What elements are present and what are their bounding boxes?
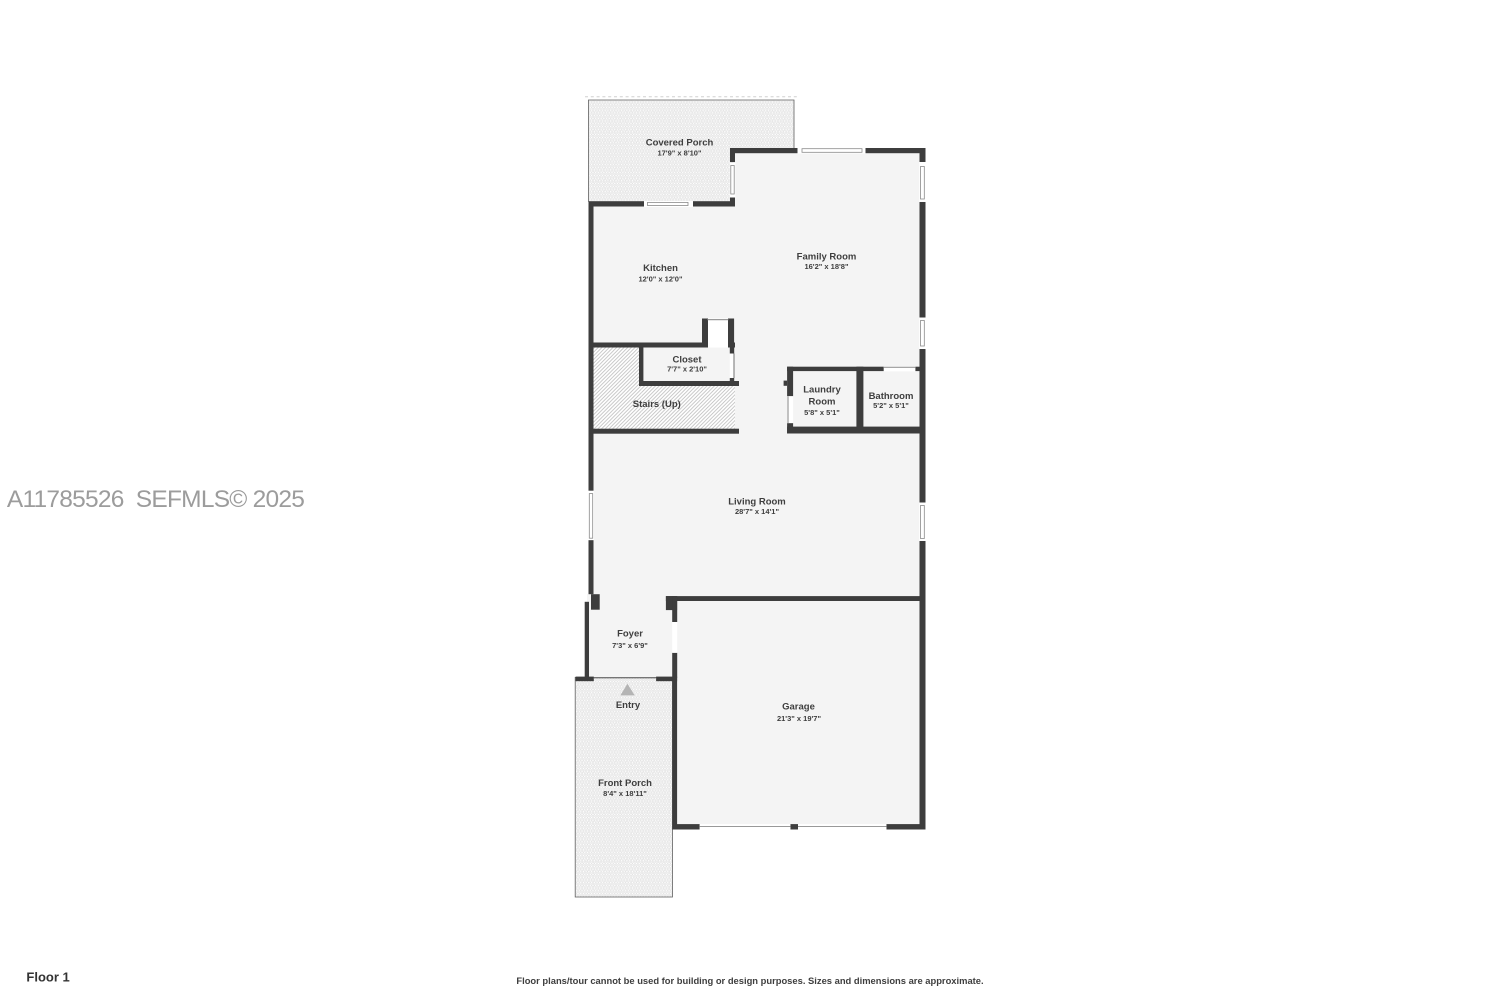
svg-text:A11785526 SEFMLS© 2025: A11785526 SEFMLS© 2025 — [7, 486, 304, 513]
svg-text:Laundry: Laundry — [803, 385, 841, 396]
svg-text:5'8" x 5'1": 5'8" x 5'1" — [804, 408, 840, 417]
svg-text:17'9" x 8'10": 17'9" x 8'10" — [657, 148, 701, 157]
svg-text:Covered Porch: Covered Porch — [646, 138, 714, 149]
svg-text:5'2" x 5'1": 5'2" x 5'1" — [873, 401, 909, 410]
svg-text:Room: Room — [809, 397, 836, 408]
svg-text:8'4" x 18'11": 8'4" x 18'11" — [603, 789, 647, 798]
svg-text:Floor plans/tour cannot be use: Floor plans/tour cannot be used for buil… — [516, 975, 983, 986]
svg-text:Living Room: Living Room — [728, 496, 786, 507]
svg-text:Floor 1: Floor 1 — [26, 969, 69, 984]
svg-text:12'0" x 12'0": 12'0" x 12'0" — [638, 274, 682, 283]
svg-text:Stairs (Up): Stairs (Up) — [633, 399, 681, 410]
svg-text:Kitchen: Kitchen — [643, 263, 678, 274]
svg-text:Entry: Entry — [616, 700, 641, 711]
svg-text:16'2" x 18'8": 16'2" x 18'8" — [804, 262, 848, 271]
svg-text:21'3" x 19'7": 21'3" x 19'7" — [777, 714, 821, 723]
svg-text:Foyer: Foyer — [617, 629, 643, 640]
svg-text:Garage: Garage — [782, 701, 815, 712]
svg-text:Front Porch: Front Porch — [598, 778, 652, 789]
svg-text:7'7" x 2'10": 7'7" x 2'10" — [667, 364, 707, 373]
svg-text:28'7" x 14'1": 28'7" x 14'1" — [735, 507, 779, 516]
svg-text:7'3" x 6'9": 7'3" x 6'9" — [612, 641, 648, 650]
svg-text:Family Room: Family Room — [797, 252, 857, 263]
